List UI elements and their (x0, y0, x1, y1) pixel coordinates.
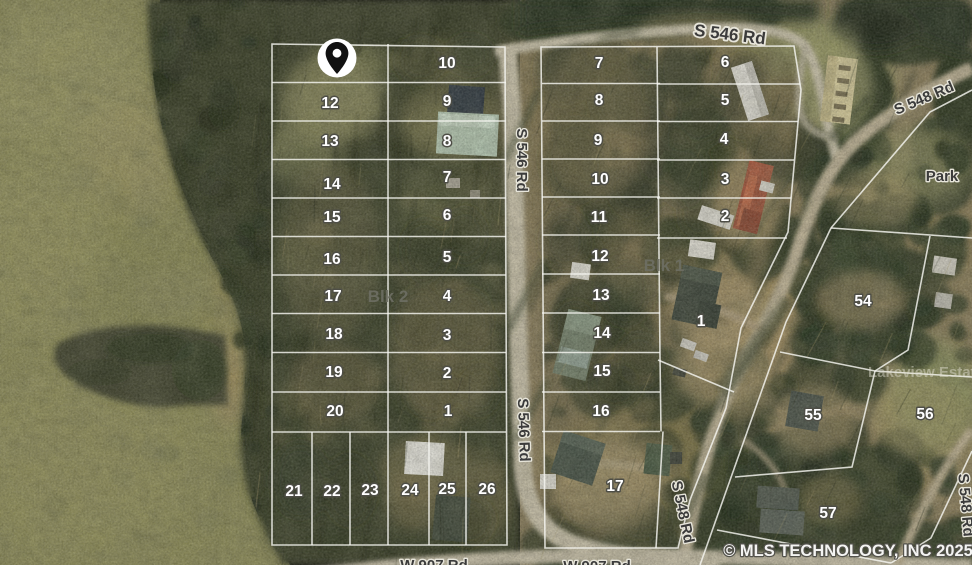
svg-text:25: 25 (438, 481, 456, 498)
svg-text:16: 16 (323, 251, 341, 268)
svg-text:8: 8 (595, 92, 604, 109)
svg-text:4: 4 (720, 131, 729, 148)
svg-text:24: 24 (401, 482, 419, 499)
svg-text:5: 5 (721, 92, 730, 109)
svg-text:W 907 Rd: W 907 Rd (400, 557, 468, 565)
svg-text:3: 3 (721, 171, 730, 188)
svg-text:Park: Park (926, 168, 959, 185)
svg-text:26: 26 (478, 481, 496, 498)
svg-text:20: 20 (326, 403, 343, 420)
svg-text:10: 10 (438, 55, 455, 72)
svg-text:9: 9 (594, 132, 603, 149)
svg-text:5: 5 (443, 249, 452, 266)
svg-text:7: 7 (595, 55, 604, 72)
svg-text:6: 6 (443, 207, 452, 224)
svg-text:21: 21 (285, 483, 303, 500)
svg-text:14: 14 (323, 176, 341, 193)
svg-text:54: 54 (854, 293, 872, 310)
svg-text:Blk 1: Blk 1 (644, 256, 685, 275)
svg-text:57: 57 (819, 505, 836, 522)
svg-text:1: 1 (444, 403, 453, 420)
svg-text:6: 6 (721, 54, 730, 71)
svg-text:12: 12 (591, 248, 608, 265)
svg-text:15: 15 (323, 209, 341, 226)
svg-text:1: 1 (697, 313, 706, 330)
svg-text:Blk 2: Blk 2 (368, 287, 409, 306)
svg-text:9: 9 (443, 93, 452, 110)
svg-text:13: 13 (592, 287, 610, 304)
svg-text:19: 19 (325, 364, 343, 381)
svg-text:15: 15 (593, 363, 611, 380)
svg-text:55: 55 (804, 407, 822, 424)
svg-text:S 546 Rd: S 546 Rd (514, 398, 533, 462)
svg-text:13: 13 (321, 133, 339, 150)
svg-text:12: 12 (321, 95, 338, 112)
svg-text:S 546 Rd: S 546 Rd (513, 128, 530, 191)
svg-text:Lakeview Estate: Lakeview Estate (868, 364, 972, 381)
svg-text:7: 7 (443, 169, 452, 186)
svg-text:23: 23 (361, 482, 379, 499)
svg-text:11: 11 (591, 209, 608, 226)
svg-text:© MLS TECHNOLOGY, INC 2025: © MLS TECHNOLOGY, INC 2025 (723, 542, 972, 560)
svg-text:2: 2 (443, 365, 452, 382)
svg-text:56: 56 (916, 406, 934, 423)
svg-text:14: 14 (593, 325, 611, 342)
svg-text:2: 2 (721, 208, 730, 225)
svg-text:8: 8 (443, 133, 452, 150)
svg-text:17: 17 (606, 478, 623, 495)
svg-text:10: 10 (591, 171, 608, 188)
svg-text:16: 16 (592, 403, 610, 420)
svg-text:22: 22 (323, 483, 340, 500)
svg-text:W 907 Rd: W 907 Rd (563, 558, 631, 565)
svg-text:18: 18 (325, 326, 343, 343)
svg-text:17: 17 (324, 288, 341, 305)
svg-text:3: 3 (443, 327, 452, 344)
svg-text:4: 4 (443, 288, 452, 305)
